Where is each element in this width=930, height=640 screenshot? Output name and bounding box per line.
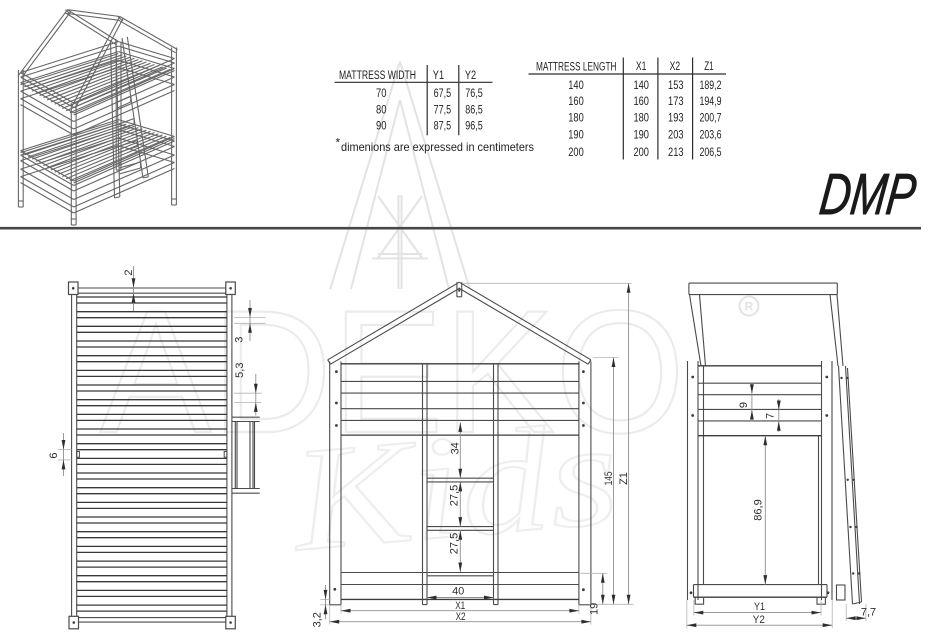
svg-text:3: 3: [234, 337, 246, 343]
svg-text:Z1: Z1: [704, 61, 714, 73]
svg-text:206,5: 206,5: [700, 145, 722, 159]
svg-text:203: 203: [668, 128, 684, 142]
svg-text:19: 19: [589, 603, 601, 615]
svg-text:86,5: 86,5: [465, 103, 483, 117]
svg-text:*: *: [336, 136, 341, 150]
svg-text:Y2: Y2: [465, 70, 476, 82]
svg-text:90: 90: [376, 119, 387, 133]
svg-text:160: 160: [633, 94, 649, 108]
svg-text:76,5: 76,5: [465, 86, 483, 100]
svg-text:2: 2: [123, 269, 135, 275]
svg-text:X2: X2: [456, 611, 466, 623]
svg-text:dimenions are expressed in cen: dimenions are expressed in centimeters: [341, 140, 534, 154]
svg-text:140: 140: [568, 78, 584, 92]
svg-text:160: 160: [568, 94, 584, 108]
svg-text:173: 173: [668, 94, 684, 108]
svg-text:DMP: DMP: [816, 162, 919, 227]
svg-text:Z1: Z1: [618, 472, 630, 485]
svg-text:X1: X1: [455, 600, 465, 612]
svg-text:Y2: Y2: [753, 614, 765, 626]
svg-text:6: 6: [48, 452, 60, 458]
svg-text:153: 153: [668, 78, 684, 92]
svg-text:9: 9: [738, 402, 750, 408]
svg-text:3,2: 3,2: [312, 612, 324, 627]
svg-text:34: 34: [449, 442, 461, 454]
svg-text:80: 80: [376, 103, 387, 117]
svg-text:180: 180: [633, 110, 649, 124]
svg-text:194,9: 194,9: [700, 94, 722, 108]
svg-text:86,9: 86,9: [753, 499, 765, 520]
svg-text:Y1: Y1: [433, 70, 444, 82]
svg-text:R: R: [745, 300, 754, 314]
svg-text:200: 200: [633, 145, 649, 159]
svg-text:77,5: 77,5: [434, 103, 452, 117]
svg-text:27,5: 27,5: [449, 533, 461, 554]
svg-text:87,5: 87,5: [434, 119, 452, 133]
svg-text:MATTRESS WIDTH: MATTRESS WIDTH: [339, 70, 416, 82]
svg-text:213: 213: [668, 145, 684, 159]
svg-text:MATTRESS LENGTH: MATTRESS LENGTH: [536, 61, 617, 73]
svg-text:X1: X1: [636, 61, 647, 73]
svg-text:145: 145: [603, 471, 615, 485]
svg-text:X2: X2: [670, 61, 681, 73]
svg-text:193: 193: [668, 110, 684, 124]
svg-text:67,5: 67,5: [434, 86, 452, 100]
svg-text:7: 7: [765, 413, 777, 419]
svg-text:Y1: Y1: [754, 601, 765, 613]
svg-text:189,2: 189,2: [700, 78, 722, 92]
svg-text:200,7: 200,7: [700, 110, 722, 124]
svg-text:203,6: 203,6: [700, 128, 722, 142]
svg-text:190: 190: [633, 128, 649, 142]
svg-text:200: 200: [568, 145, 584, 159]
svg-text:27,5: 27,5: [449, 485, 461, 506]
svg-text:190: 190: [568, 128, 584, 142]
svg-text:7,7: 7,7: [861, 607, 876, 619]
svg-text:140: 140: [633, 78, 649, 92]
svg-text:40: 40: [452, 586, 464, 598]
svg-text:180: 180: [568, 110, 584, 124]
svg-text:5,3: 5,3: [234, 363, 246, 378]
svg-text:70: 70: [376, 86, 387, 100]
svg-text:96,5: 96,5: [465, 119, 483, 133]
